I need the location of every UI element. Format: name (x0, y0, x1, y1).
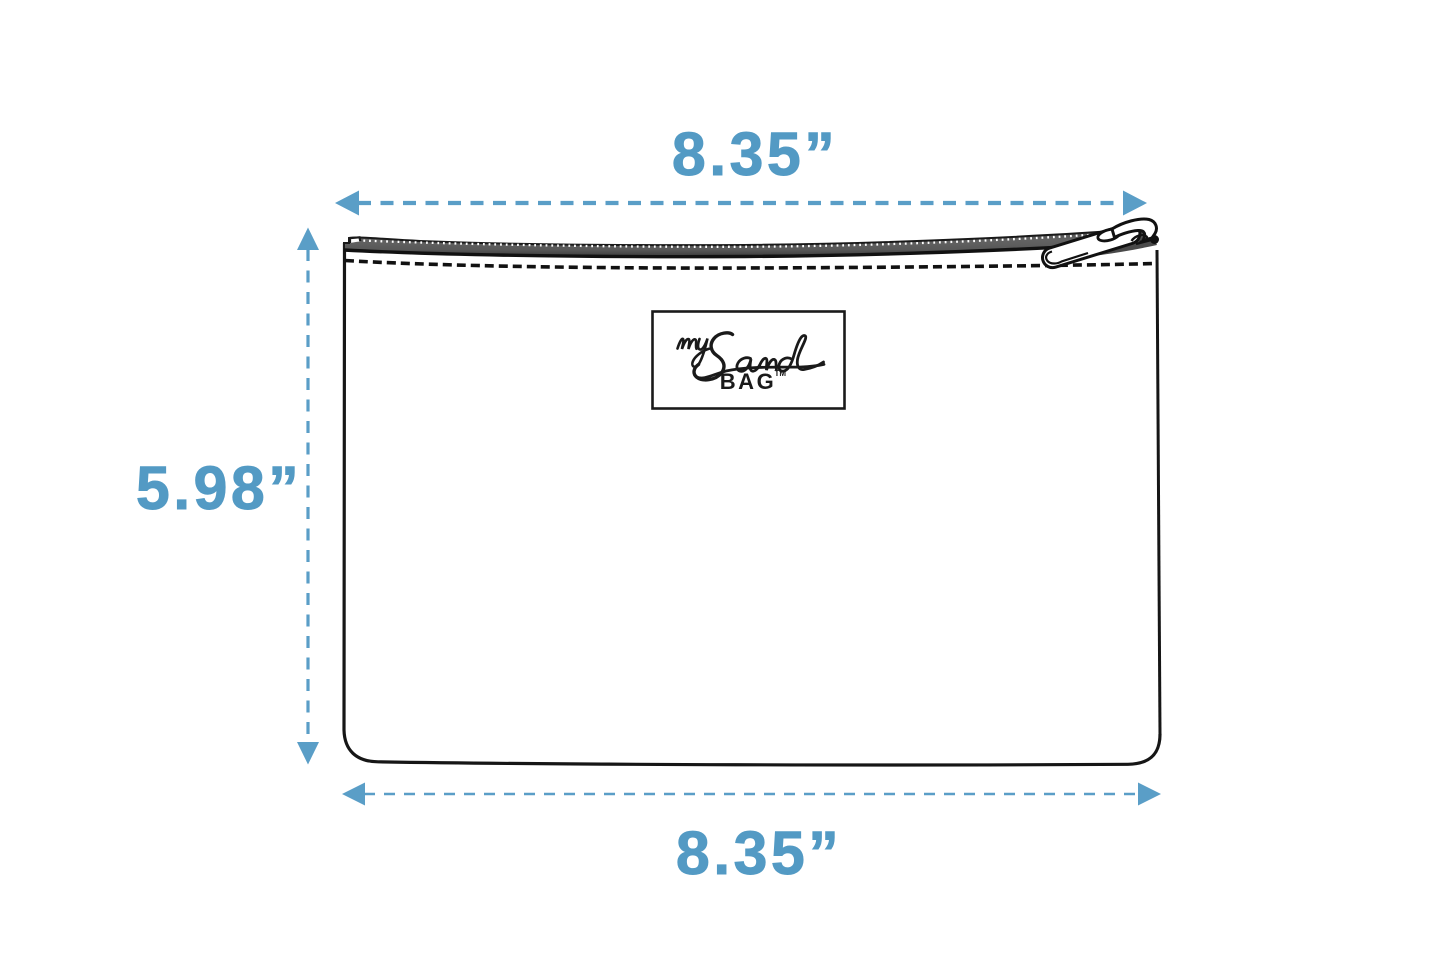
svg-text:8.35”: 8.35” (672, 120, 838, 188)
svg-text:BAG: BAG (720, 369, 776, 394)
svg-text:TM: TM (775, 369, 787, 378)
svg-text:8.35”: 8.35” (676, 819, 842, 887)
svg-text:5.98”: 5.98” (136, 454, 302, 522)
